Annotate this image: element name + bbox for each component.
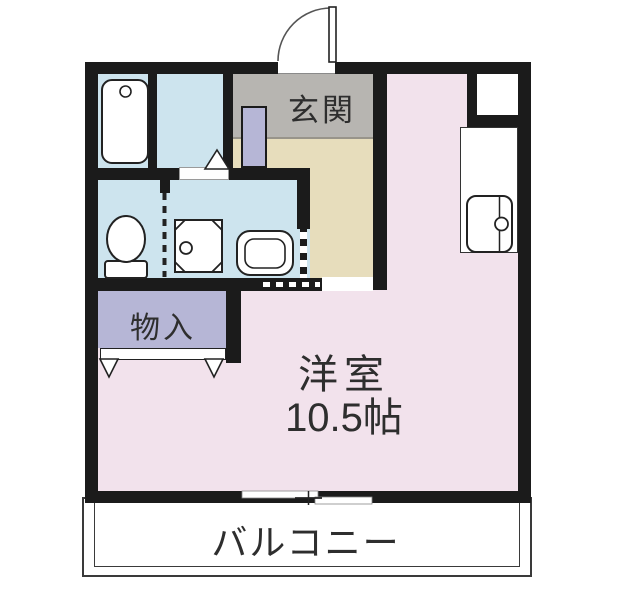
hallway-room-opening: [322, 277, 373, 291]
floor-plan: 玄関 物入 洋室 10.5帖 バルコニー: [0, 0, 640, 607]
balcony-label: バルコニー: [156, 514, 456, 566]
wall-storage-right: [226, 278, 241, 363]
bath-door-opening: [179, 167, 229, 180]
wall-washroom-bottom: [85, 278, 322, 291]
room-bathroom: [98, 74, 233, 180]
closet-door-strip: [100, 348, 226, 360]
entrance-door-icon: [278, 7, 336, 62]
wall-bath-divider: [148, 74, 157, 180]
main-room-label: 洋室 10.5帖: [244, 354, 444, 440]
wall-toilet-stub: [160, 180, 170, 193]
pipe-space-box: [477, 74, 518, 115]
kitchen-counter: [460, 127, 518, 253]
genkan-label: 玄関: [262, 85, 382, 130]
storage-label: 物入: [103, 303, 223, 347]
wall-right: [518, 62, 531, 503]
room-washroom: [98, 180, 310, 290]
wall-bath-genkan: [223, 74, 233, 180]
main-room-size: 10.5帖: [244, 397, 444, 440]
wall-bottom: [85, 491, 531, 503]
main-room-name: 洋室: [244, 354, 444, 397]
wall-washroom-right: [297, 178, 310, 229]
entrance-opening: [278, 62, 335, 74]
